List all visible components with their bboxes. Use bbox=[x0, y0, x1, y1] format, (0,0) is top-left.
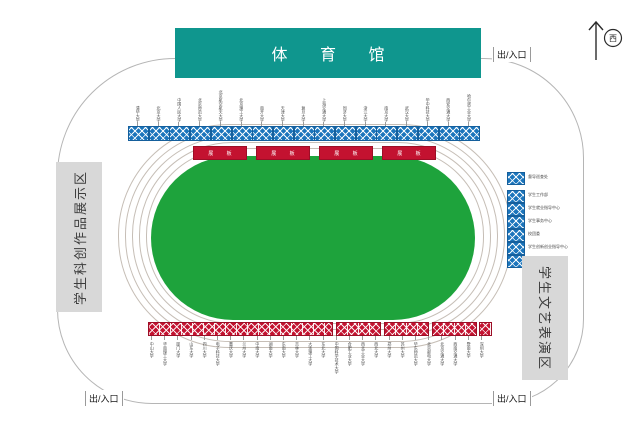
bottom-booth-label: 郑州大学 bbox=[387, 342, 392, 358]
right-office-box bbox=[507, 242, 525, 255]
booth-tick bbox=[220, 122, 221, 126]
top-booth-box bbox=[190, 126, 211, 141]
top-booth-label: 清华大学 bbox=[135, 106, 140, 122]
entrance-top-right: 出/入口 bbox=[492, 46, 532, 62]
gymnasium-label: 体 育 馆 bbox=[258, 41, 399, 65]
right-office-label: 学生就业指导中心 bbox=[528, 206, 560, 210]
booth-tick bbox=[402, 336, 403, 340]
booth-tick bbox=[375, 336, 376, 340]
booth-tick bbox=[336, 336, 337, 340]
bottom-booth-label: 中国科学技术大学 bbox=[334, 342, 339, 374]
bottom-booth-bar bbox=[336, 322, 381, 336]
booth-tick bbox=[230, 336, 231, 340]
right-office-label: 校团委 bbox=[528, 232, 540, 236]
booth-tick bbox=[468, 122, 469, 126]
top-booth-label: 华中科技大学 bbox=[425, 98, 430, 122]
gate-tick bbox=[493, 391, 494, 406]
bottom-booth-label: 西北大学 bbox=[374, 342, 379, 358]
booth-tick bbox=[191, 336, 192, 340]
top-booth-box bbox=[273, 126, 294, 141]
gate-tick bbox=[122, 391, 123, 406]
entrance-label: 出/入口 bbox=[497, 48, 527, 61]
top-booth-label: 天津大学 bbox=[280, 106, 285, 122]
north-arrow-icon bbox=[584, 16, 628, 64]
top-booth-label: 南京大学 bbox=[384, 106, 389, 122]
bottom-booth-label: 北京交通大学 bbox=[440, 342, 445, 366]
top-booth-box bbox=[232, 126, 253, 141]
booth-tick bbox=[283, 336, 284, 340]
top-booth-box bbox=[211, 126, 232, 141]
bottom-booth-label: 西南交通大学 bbox=[453, 342, 458, 366]
top-booth-label: 哈尔滨工业大学 bbox=[466, 94, 471, 122]
booth-tick bbox=[303, 122, 304, 126]
bottom-booth-bar bbox=[432, 322, 477, 336]
bottom-booth-label: 东北大学 bbox=[321, 342, 326, 358]
bottom-booth-label: 苏州大学 bbox=[400, 342, 405, 358]
football-field bbox=[151, 156, 475, 320]
booth-tick bbox=[389, 336, 390, 340]
booth-tick bbox=[204, 336, 205, 340]
top-booth-box bbox=[314, 126, 335, 141]
top-booth-label: 北京大学 bbox=[156, 106, 161, 122]
top-booth-box bbox=[169, 126, 190, 141]
top-booth-label: 北京理工大学 bbox=[239, 98, 244, 122]
booth-tick bbox=[270, 336, 271, 340]
gate-tick bbox=[493, 47, 494, 62]
booth-tick bbox=[257, 336, 258, 340]
right-office-label: 督导巡查处 bbox=[528, 175, 548, 179]
booth-tick bbox=[178, 122, 179, 126]
stadium-event-map: 体 育 馆 西 清华大学北京大学中国人民大学北京师范大学北京航空航天大学北京理工… bbox=[0, 0, 640, 448]
booth-tick bbox=[243, 336, 244, 340]
display-board-bar: 展 板 bbox=[193, 146, 247, 160]
booth-tick bbox=[362, 336, 363, 340]
bottom-booth-label: 东南大学 bbox=[281, 342, 286, 358]
right-office-box bbox=[507, 229, 525, 242]
bottom-booth-label: 电子科技大学 bbox=[215, 342, 220, 366]
booth-tick bbox=[217, 336, 218, 340]
bottom-booth-label: 中山大学 bbox=[149, 342, 154, 358]
top-booth-label: 北京师范大学 bbox=[197, 98, 202, 122]
top-booth-label: 南开大学 bbox=[259, 106, 264, 122]
booth-tick bbox=[385, 122, 386, 126]
display-board-bar: 展 板 bbox=[319, 146, 373, 160]
top-booth-box bbox=[252, 126, 273, 141]
entrance-bottom-left: 出/入口 bbox=[84, 390, 124, 406]
booth-tick bbox=[261, 122, 262, 126]
top-booth-label: 西安交通大学 bbox=[446, 98, 451, 122]
booth-tick bbox=[406, 122, 407, 126]
gate-tick bbox=[530, 391, 531, 406]
bottom-booth-label: 中南大学 bbox=[255, 342, 260, 358]
top-booth-box bbox=[294, 126, 315, 141]
top-booth-box bbox=[376, 126, 397, 141]
gymnasium-building: 体 育 馆 bbox=[175, 28, 481, 78]
booth-tick bbox=[296, 336, 297, 340]
top-booth-box bbox=[439, 126, 460, 141]
bottom-booth-label: 吉林大学 bbox=[294, 342, 299, 358]
bottom-booth-label: 北京邮电大学 bbox=[426, 342, 431, 366]
top-booth-label: 复旦大学 bbox=[301, 106, 306, 122]
right-office-box bbox=[507, 172, 525, 185]
bottom-booth-label: 大连理工大学 bbox=[308, 342, 313, 366]
booth-tick bbox=[323, 122, 324, 126]
top-booth-box bbox=[128, 126, 149, 141]
booth-tick bbox=[455, 336, 456, 340]
entrance-bottom-right: 出/入口 bbox=[492, 390, 532, 406]
booth-tick bbox=[344, 122, 345, 126]
zone-arts-performance: 学生文艺表演区 bbox=[522, 256, 568, 380]
booth-tick bbox=[164, 336, 165, 340]
top-booth-label: 同济大学 bbox=[342, 106, 347, 122]
top-booth-box bbox=[418, 126, 439, 141]
bottom-booth-label: 暨南大学 bbox=[466, 342, 471, 358]
right-office-box bbox=[507, 190, 525, 203]
bottom-booth-label: 华南理工大学 bbox=[162, 342, 167, 366]
entrance-label: 出/入口 bbox=[89, 392, 119, 405]
top-booth-box bbox=[356, 126, 377, 141]
booth-tick bbox=[137, 122, 138, 126]
booth-tick bbox=[448, 122, 449, 126]
top-booth-box bbox=[149, 126, 170, 141]
booth-tick bbox=[365, 122, 366, 126]
bottom-booth-label: 西北工业大学 bbox=[360, 342, 365, 366]
booth-tick bbox=[428, 336, 429, 340]
top-booth-label: 北京航空航天大学 bbox=[218, 90, 223, 122]
booth-tick bbox=[241, 122, 242, 126]
bottom-booth-bar bbox=[148, 322, 333, 336]
bottom-booth-label: 重庆大学 bbox=[228, 342, 233, 358]
right-office-label: 学生创新创业指导中心 bbox=[528, 245, 568, 249]
bottom-booth-bar bbox=[479, 322, 492, 336]
right-office-label: 学生工作部 bbox=[528, 193, 548, 197]
bottom-booth-label: 华东师范大学 bbox=[413, 342, 418, 366]
right-office-label: 学生事务中心 bbox=[528, 219, 552, 223]
zone-right-label: 学生文艺表演区 bbox=[536, 265, 555, 370]
compass-direction-label: 西 bbox=[608, 33, 619, 44]
compass: 西 bbox=[584, 16, 628, 64]
zone-science-works-display: 学生科创作品展示区 bbox=[56, 162, 102, 312]
booth-tick bbox=[427, 122, 428, 126]
top-booth-box bbox=[335, 126, 356, 141]
booth-tick bbox=[199, 122, 200, 126]
bottom-booth-label: 山东大学 bbox=[189, 342, 194, 358]
booth-tick bbox=[158, 122, 159, 126]
bottom-booth-label: 合肥工业大学 bbox=[347, 342, 352, 366]
display-board-bar: 展 板 bbox=[256, 146, 310, 160]
gate-tick bbox=[85, 391, 86, 406]
bottom-booth-label: 兰州大学 bbox=[242, 342, 247, 358]
booth-tick bbox=[309, 336, 310, 340]
booth-tick bbox=[151, 336, 152, 340]
booth-tick bbox=[481, 336, 482, 340]
bottom-booth-label: 厦门大学 bbox=[176, 342, 181, 358]
bottom-booth-label: 湖南大学 bbox=[268, 342, 273, 358]
entrance-label: 出/入口 bbox=[497, 392, 527, 405]
top-booth-box bbox=[459, 126, 480, 141]
top-booth-label: 中国人民大学 bbox=[177, 98, 182, 122]
booth-tick bbox=[282, 122, 283, 126]
bottom-booth-label: 四川大学 bbox=[202, 342, 207, 358]
booth-tick bbox=[468, 336, 469, 340]
display-board-bar: 展 板 bbox=[382, 146, 436, 160]
top-booth-label: 上海交通大学 bbox=[322, 98, 327, 122]
booth-tick bbox=[441, 336, 442, 340]
right-office-box bbox=[507, 203, 525, 216]
top-booth-box bbox=[397, 126, 418, 141]
booth-tick bbox=[349, 336, 350, 340]
gate-tick bbox=[530, 47, 531, 62]
bottom-booth-label: 深圳大学 bbox=[479, 342, 484, 358]
booth-tick bbox=[177, 336, 178, 340]
top-booth-label: 浙江大学 bbox=[363, 106, 368, 122]
top-booth-label: 武汉大学 bbox=[404, 106, 409, 122]
right-office-box bbox=[507, 216, 525, 229]
zone-left-label: 学生科创作品展示区 bbox=[70, 169, 89, 304]
bottom-booth-bar bbox=[384, 322, 429, 336]
booth-tick bbox=[415, 336, 416, 340]
booth-tick bbox=[323, 336, 324, 340]
